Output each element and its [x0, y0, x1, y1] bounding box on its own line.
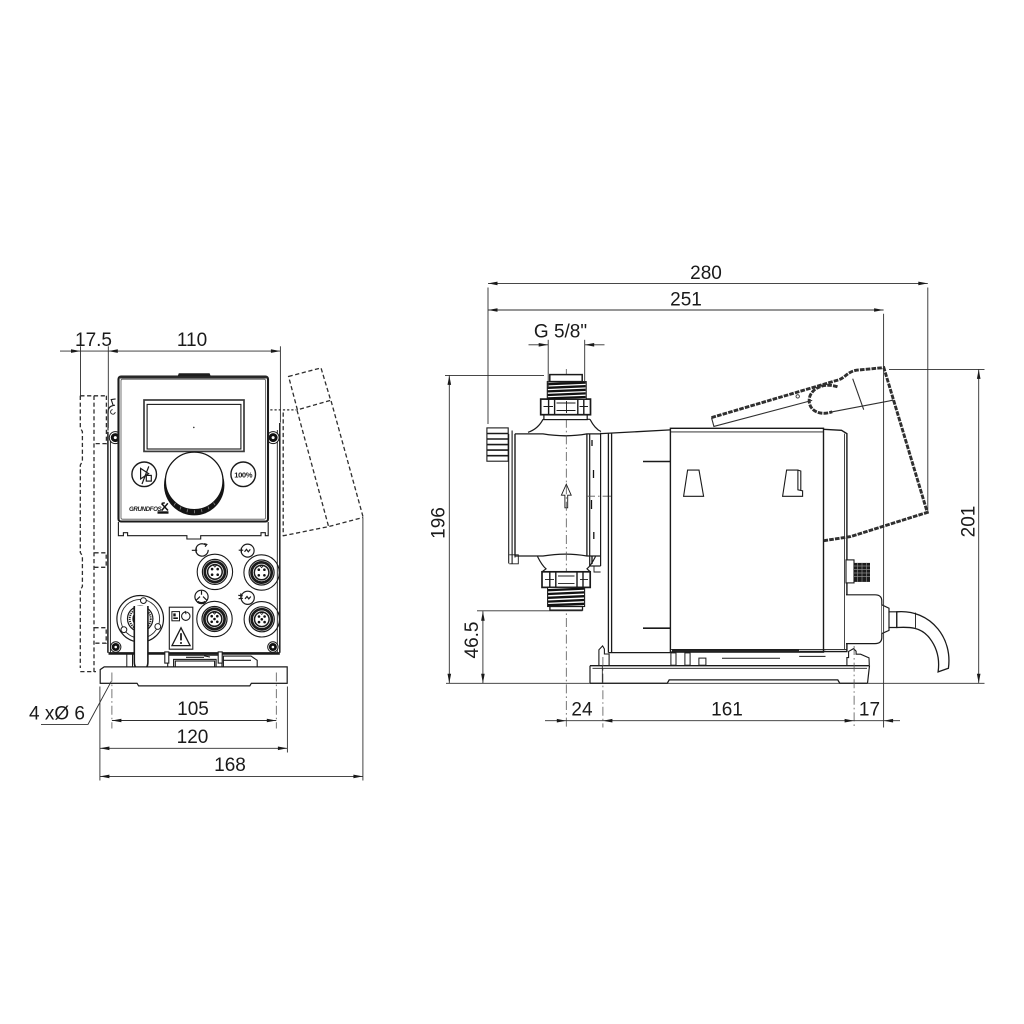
svg-text:280: 280: [690, 263, 722, 284]
svg-text:196: 196: [429, 507, 450, 539]
svg-text:105: 105: [177, 699, 209, 720]
svg-text:G 5/8": G 5/8": [534, 322, 587, 343]
svg-text:110: 110: [177, 330, 207, 351]
svg-text:120: 120: [177, 727, 209, 748]
svg-text:17: 17: [859, 700, 880, 721]
svg-text:168: 168: [214, 755, 246, 776]
svg-text:46.5: 46.5: [462, 622, 483, 659]
svg-text:100%: 100%: [234, 470, 252, 479]
svg-text:251: 251: [670, 289, 702, 310]
svg-text:201: 201: [959, 506, 980, 538]
svg-text:4 xØ 6: 4 xØ 6: [29, 703, 85, 724]
svg-text:24: 24: [571, 700, 593, 721]
svg-text:161: 161: [711, 700, 743, 721]
svg-text:GRUNDFOS: GRUNDFOS: [129, 506, 162, 513]
